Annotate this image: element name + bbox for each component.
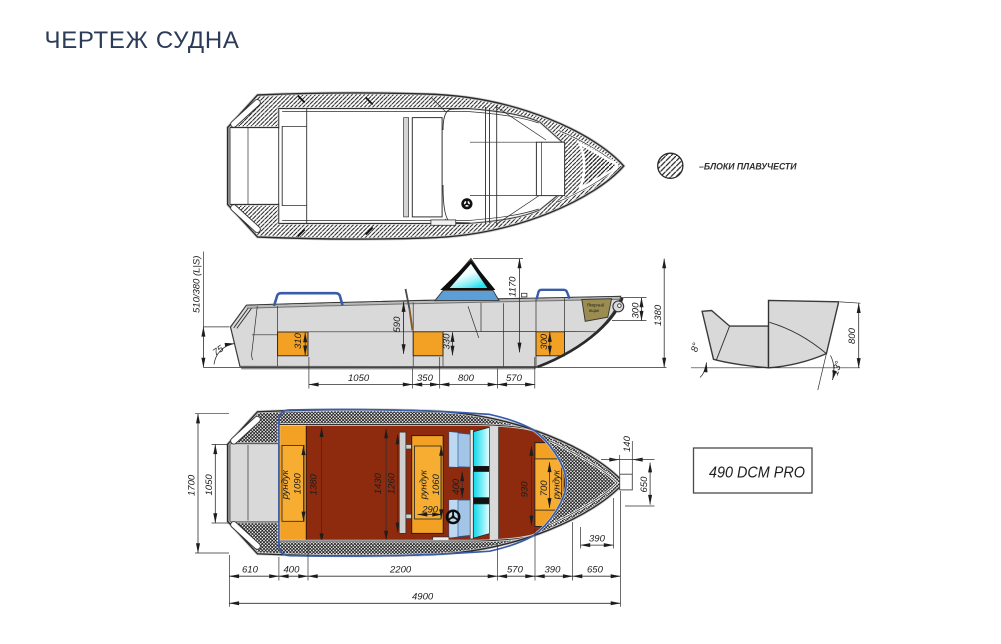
svg-text:1050: 1050 <box>204 474 215 496</box>
svg-text:Якорный: Якорный <box>586 303 605 308</box>
svg-text:800: 800 <box>458 373 475 384</box>
svg-text:13°: 13° <box>830 360 845 377</box>
svg-text:рундук: рундук <box>280 469 291 500</box>
svg-text:290: 290 <box>421 505 439 516</box>
svg-text:400: 400 <box>284 565 301 576</box>
svg-text:330: 330 <box>442 333 453 350</box>
svg-text:1380: 1380 <box>653 304 664 326</box>
svg-text:490 DCM PRO: 490 DCM PRO <box>709 465 805 482</box>
svg-text:590: 590 <box>392 316 403 333</box>
svg-text:75: 75 <box>211 343 227 358</box>
svg-text:1430: 1430 <box>373 472 384 494</box>
svg-text:610: 610 <box>242 565 259 576</box>
svg-text:310: 310 <box>293 332 304 349</box>
svg-text:570: 570 <box>506 373 523 384</box>
svg-text:ЧЕРТЕЖ СУДНА: ЧЕРТЕЖ СУДНА <box>45 27 240 54</box>
svg-text:300: 300 <box>539 333 550 350</box>
svg-text:8°: 8° <box>689 341 702 353</box>
svg-text:390: 390 <box>589 534 606 545</box>
svg-text:350: 350 <box>417 373 434 384</box>
svg-text:1700: 1700 <box>187 474 198 496</box>
svg-text:4900: 4900 <box>412 592 434 603</box>
svg-text:1380: 1380 <box>308 473 319 495</box>
svg-text:140: 140 <box>622 435 633 452</box>
svg-text:2200: 2200 <box>389 565 412 576</box>
svg-text:390: 390 <box>545 565 562 576</box>
svg-text:800: 800 <box>847 327 858 344</box>
svg-text:300: 300 <box>630 302 641 319</box>
svg-text:400: 400 <box>451 478 462 495</box>
svg-text:700: 700 <box>539 480 550 497</box>
svg-text:510/380 (L|S): 510/380 (L|S) <box>192 256 203 313</box>
svg-text:1090: 1090 <box>293 472 304 494</box>
svg-text:1170: 1170 <box>508 276 519 297</box>
svg-text:930: 930 <box>520 481 531 498</box>
svg-text:650: 650 <box>587 565 604 576</box>
svg-text:570: 570 <box>507 565 524 576</box>
svg-text:–БЛОКИ ПЛАВУЧЕСТИ: –БЛОКИ ПЛАВУЧЕСТИ <box>699 160 797 171</box>
svg-text:1060: 1060 <box>431 473 442 495</box>
svg-text:рундук: рундук <box>419 469 430 500</box>
svg-text:ящик: ящик <box>588 308 600 313</box>
svg-text:1260: 1260 <box>387 472 398 494</box>
svg-text:650: 650 <box>639 476 650 493</box>
svg-text:рундук: рундук <box>552 469 563 500</box>
svg-text:1050: 1050 <box>348 373 370 384</box>
